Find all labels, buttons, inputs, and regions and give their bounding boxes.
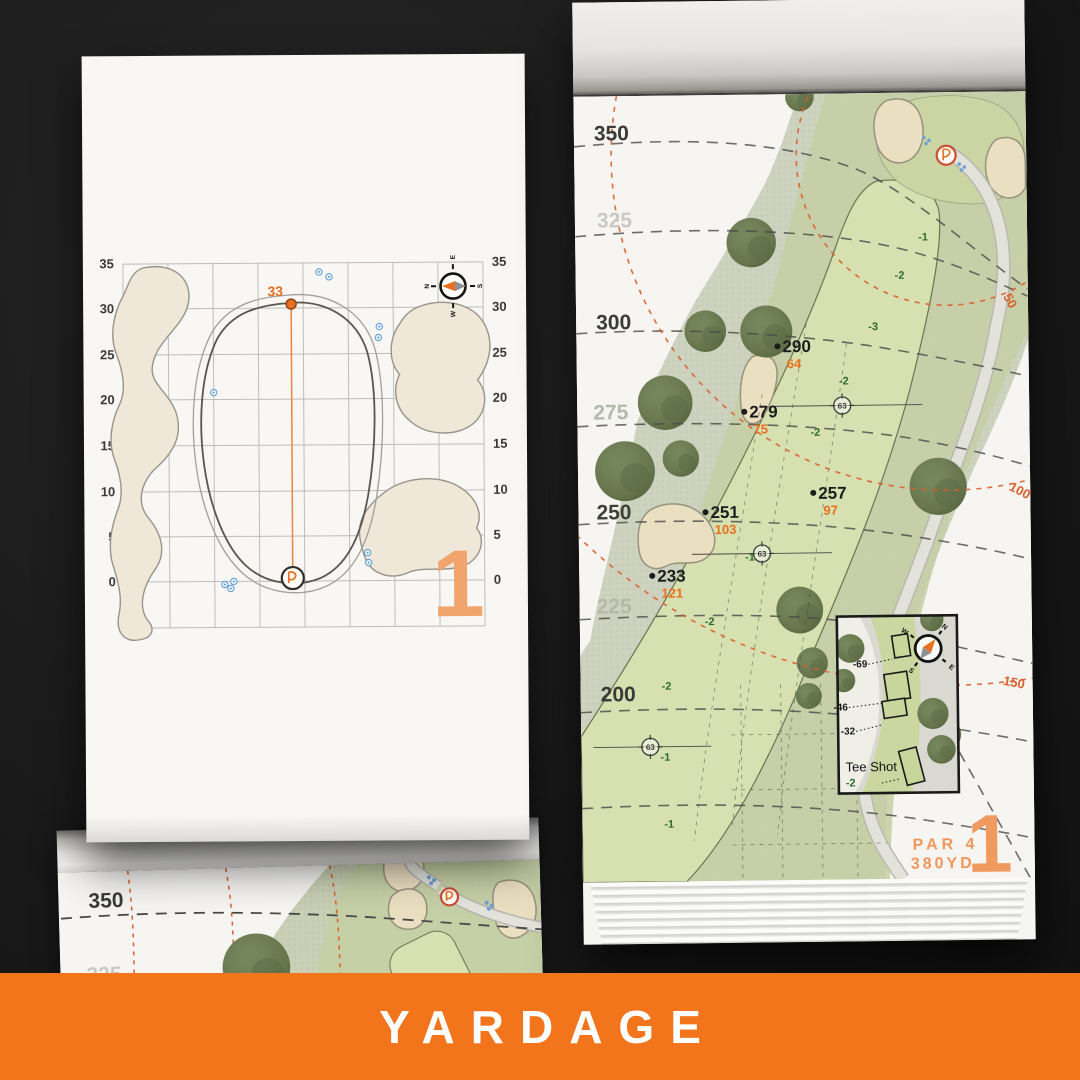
page-stack-edges [588,877,1031,944]
hole-number: 1 [432,531,485,637]
compass-s: S [477,283,484,288]
tee-shot-inset: -69 -46 -32 Tee Shot -2 N E [831,604,974,793]
mockup-stage: 350 325 35 30 25 20 15 10 5 0 35 [0,0,1080,1080]
marker-279: 279 [749,402,778,421]
tick-left-35: 35 [99,256,114,271]
pin-marker [937,146,956,165]
label-300: 300 [596,311,631,334]
pin-marker [441,888,458,905]
tick-right-15: 15 [493,436,508,451]
marker-257: 257 [818,483,847,502]
sprinkler-markers [210,268,384,591]
sprinkler-dots [212,271,382,590]
tick-right-30: 30 [492,299,507,314]
tick-right-20: 20 [493,390,508,405]
compass-w: W [450,310,457,317]
elev-1: -2 [895,270,905,282]
tee-offset-46: -46 [833,702,848,713]
label-250: 250 [596,501,631,524]
elev-2: -3 [868,321,878,333]
marker-290: 290 [782,337,811,356]
tee-offset-69: -69 [853,659,868,670]
pin-dot [286,299,296,309]
page-curl [572,0,1025,97]
tee-offset-32: -32 [841,726,856,737]
pin-measure-line [291,304,293,578]
banner-title: YARDAGE [363,1000,717,1054]
tick-right-25: 25 [492,345,507,360]
label-275: 275 [593,401,629,424]
compass-n: N [424,284,431,289]
elev-5: -1 [745,552,755,564]
label-350: 350 [594,122,629,145]
marker-290-pin: 64 [787,356,802,371]
pin-distance-label: 33 [267,283,283,299]
tick-left-10: 10 [101,484,116,499]
tick-right-0: 0 [494,572,501,587]
waypoint-63-b: 63 [758,549,768,558]
tick-right-10: 10 [493,482,508,497]
hole-map-booklet: 50 100 150 63 63 63 [572,0,1035,945]
elev-9: -1 [664,819,674,831]
label-325: 325 [597,209,633,232]
elev-0: -1 [918,231,928,243]
distance-label-350: 350 [88,889,124,913]
marker-257-pin: 97 [823,503,838,518]
yardage-label: 380YD [911,855,975,873]
label-225: 225 [597,595,633,618]
inset-elevation: -2 [846,777,856,789]
yardage-banner: YARDAGE [0,973,1080,1080]
green-collar-outline [192,294,383,593]
marker-279-pin: 75 [753,421,768,436]
waypoint-63-c: 63 [646,743,656,752]
bunker-left-strip [109,266,191,640]
bunker-right-top [391,302,491,433]
tick-left-25: 25 [100,347,115,362]
marker-233-pin: 121 [661,585,683,600]
tick-left-30: 30 [100,301,115,316]
tick-right-5: 5 [493,527,500,542]
waypoint-63-a: 63 [838,401,848,410]
tick-left-20: 20 [100,392,115,407]
inset-title: Tee Shot [846,759,898,775]
elev-7: -2 [662,681,672,693]
marker-251: 251 [710,503,739,522]
hole-map-page: 50 100 150 63 63 63 [573,91,1035,882]
green-detail-diagram: 35 30 25 20 15 10 5 0 35 30 25 20 15 10 … [82,54,530,843]
elev-8: -1 [660,752,670,764]
label-200: 200 [601,683,636,706]
tick-right-35: 35 [492,254,507,269]
approach-marker [282,567,304,589]
green-detail-booklet: 35 30 25 20 15 10 5 0 35 30 25 20 15 10 … [82,54,530,843]
elev-4: -2 [810,427,820,439]
hole-number: 1 [966,798,1013,882]
marker-251-pin: 103 [715,522,737,537]
marker-233: 233 [657,566,686,585]
tick-left-0: 0 [109,574,116,589]
hole-map: 50 100 150 63 63 63 [573,91,1035,882]
elev-3: -2 [839,375,849,387]
elev-6: -2 [705,616,715,628]
compass-e: E [450,254,457,259]
